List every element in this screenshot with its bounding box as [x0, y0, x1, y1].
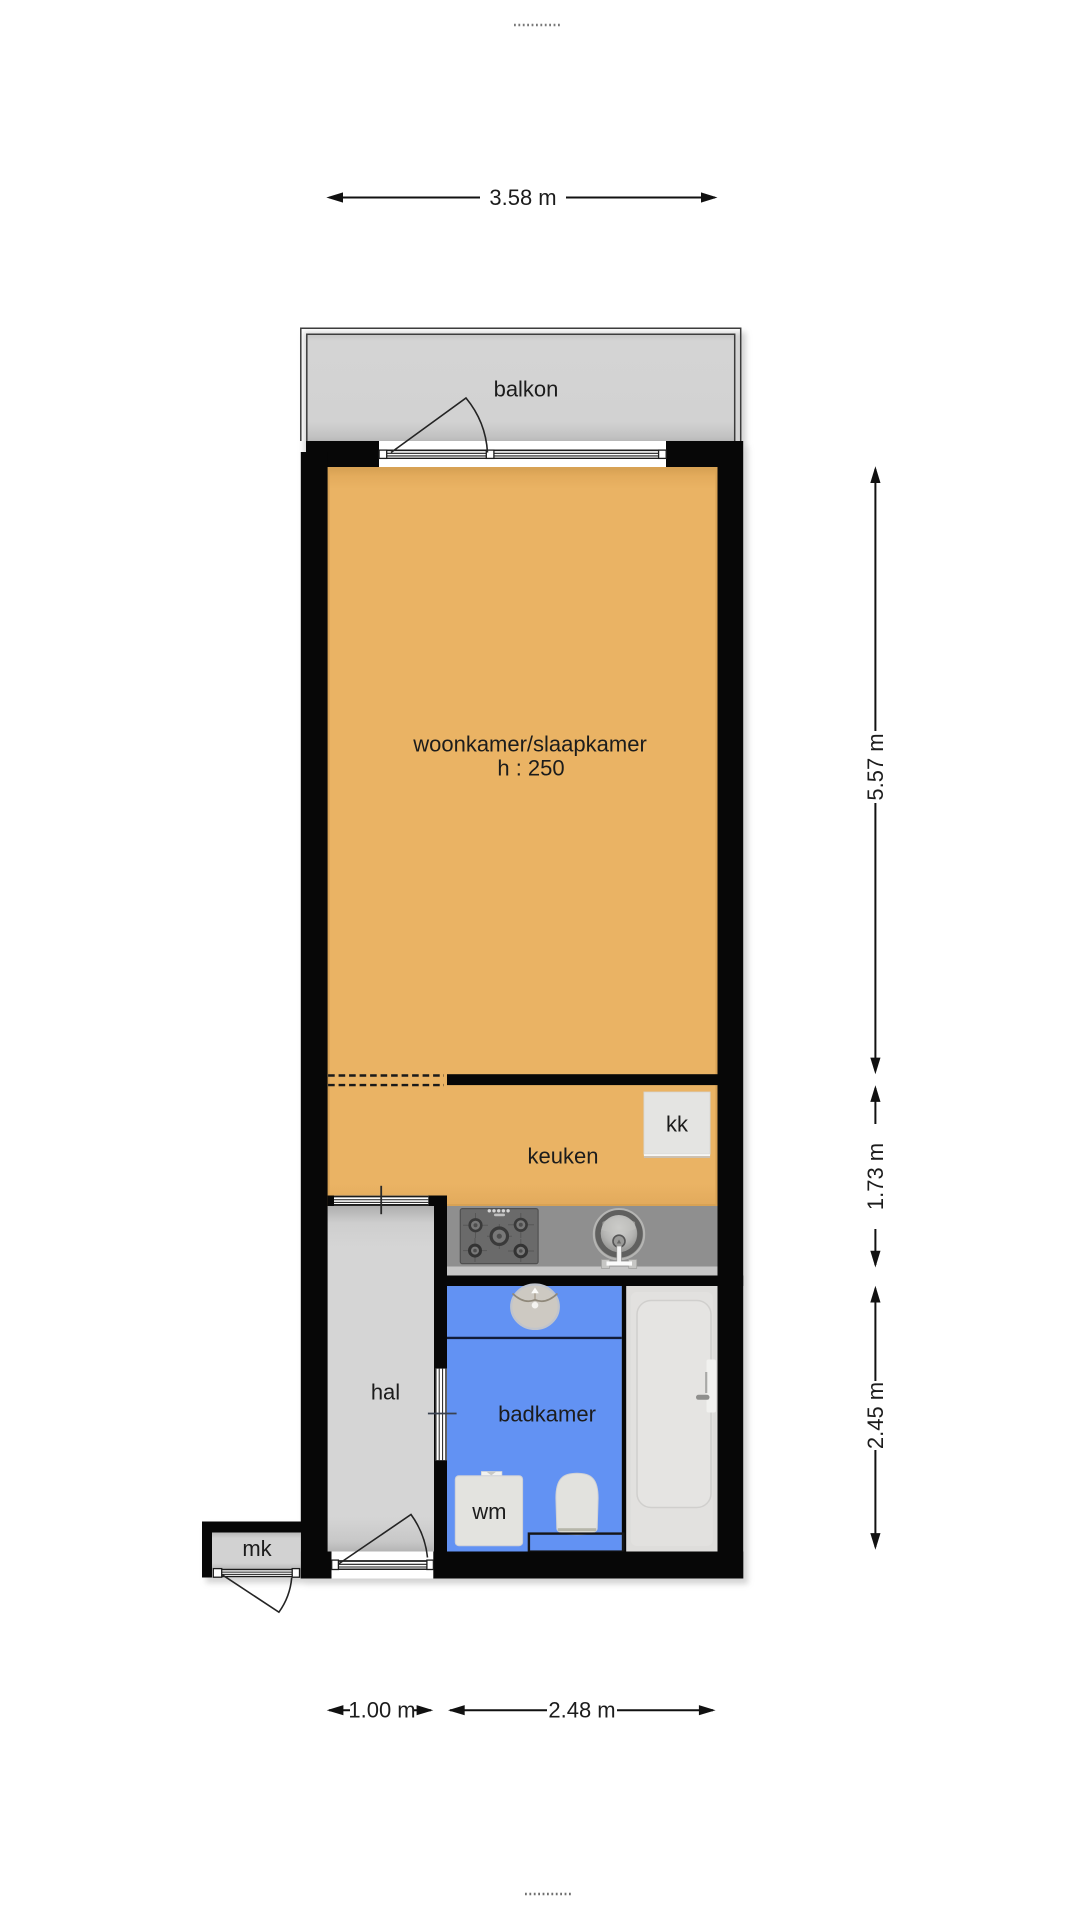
- svg-text:keuken: keuken: [528, 1144, 599, 1169]
- svg-text:badkamer: badkamer: [498, 1402, 596, 1427]
- svg-text:hal: hal: [371, 1380, 400, 1405]
- svg-text:3.58 m: 3.58 m: [489, 185, 556, 210]
- svg-text:kk: kk: [666, 1112, 689, 1137]
- svg-text:2.45 m: 2.45 m: [863, 1382, 888, 1449]
- svg-text:woonkamer/slaapkamer: woonkamer/slaapkamer: [412, 732, 647, 757]
- svg-text:mk: mk: [242, 1536, 272, 1561]
- svg-text:5.57 m: 5.57 m: [863, 733, 888, 800]
- svg-text:wm: wm: [471, 1499, 506, 1524]
- svg-text:2.48 m: 2.48 m: [548, 1698, 615, 1723]
- svg-text:1.73 m: 1.73 m: [863, 1143, 888, 1210]
- svg-text:balkon: balkon: [494, 377, 559, 402]
- svg-text:1.00 m: 1.00 m: [348, 1698, 415, 1723]
- svg-text:h : 250: h : 250: [497, 756, 564, 781]
